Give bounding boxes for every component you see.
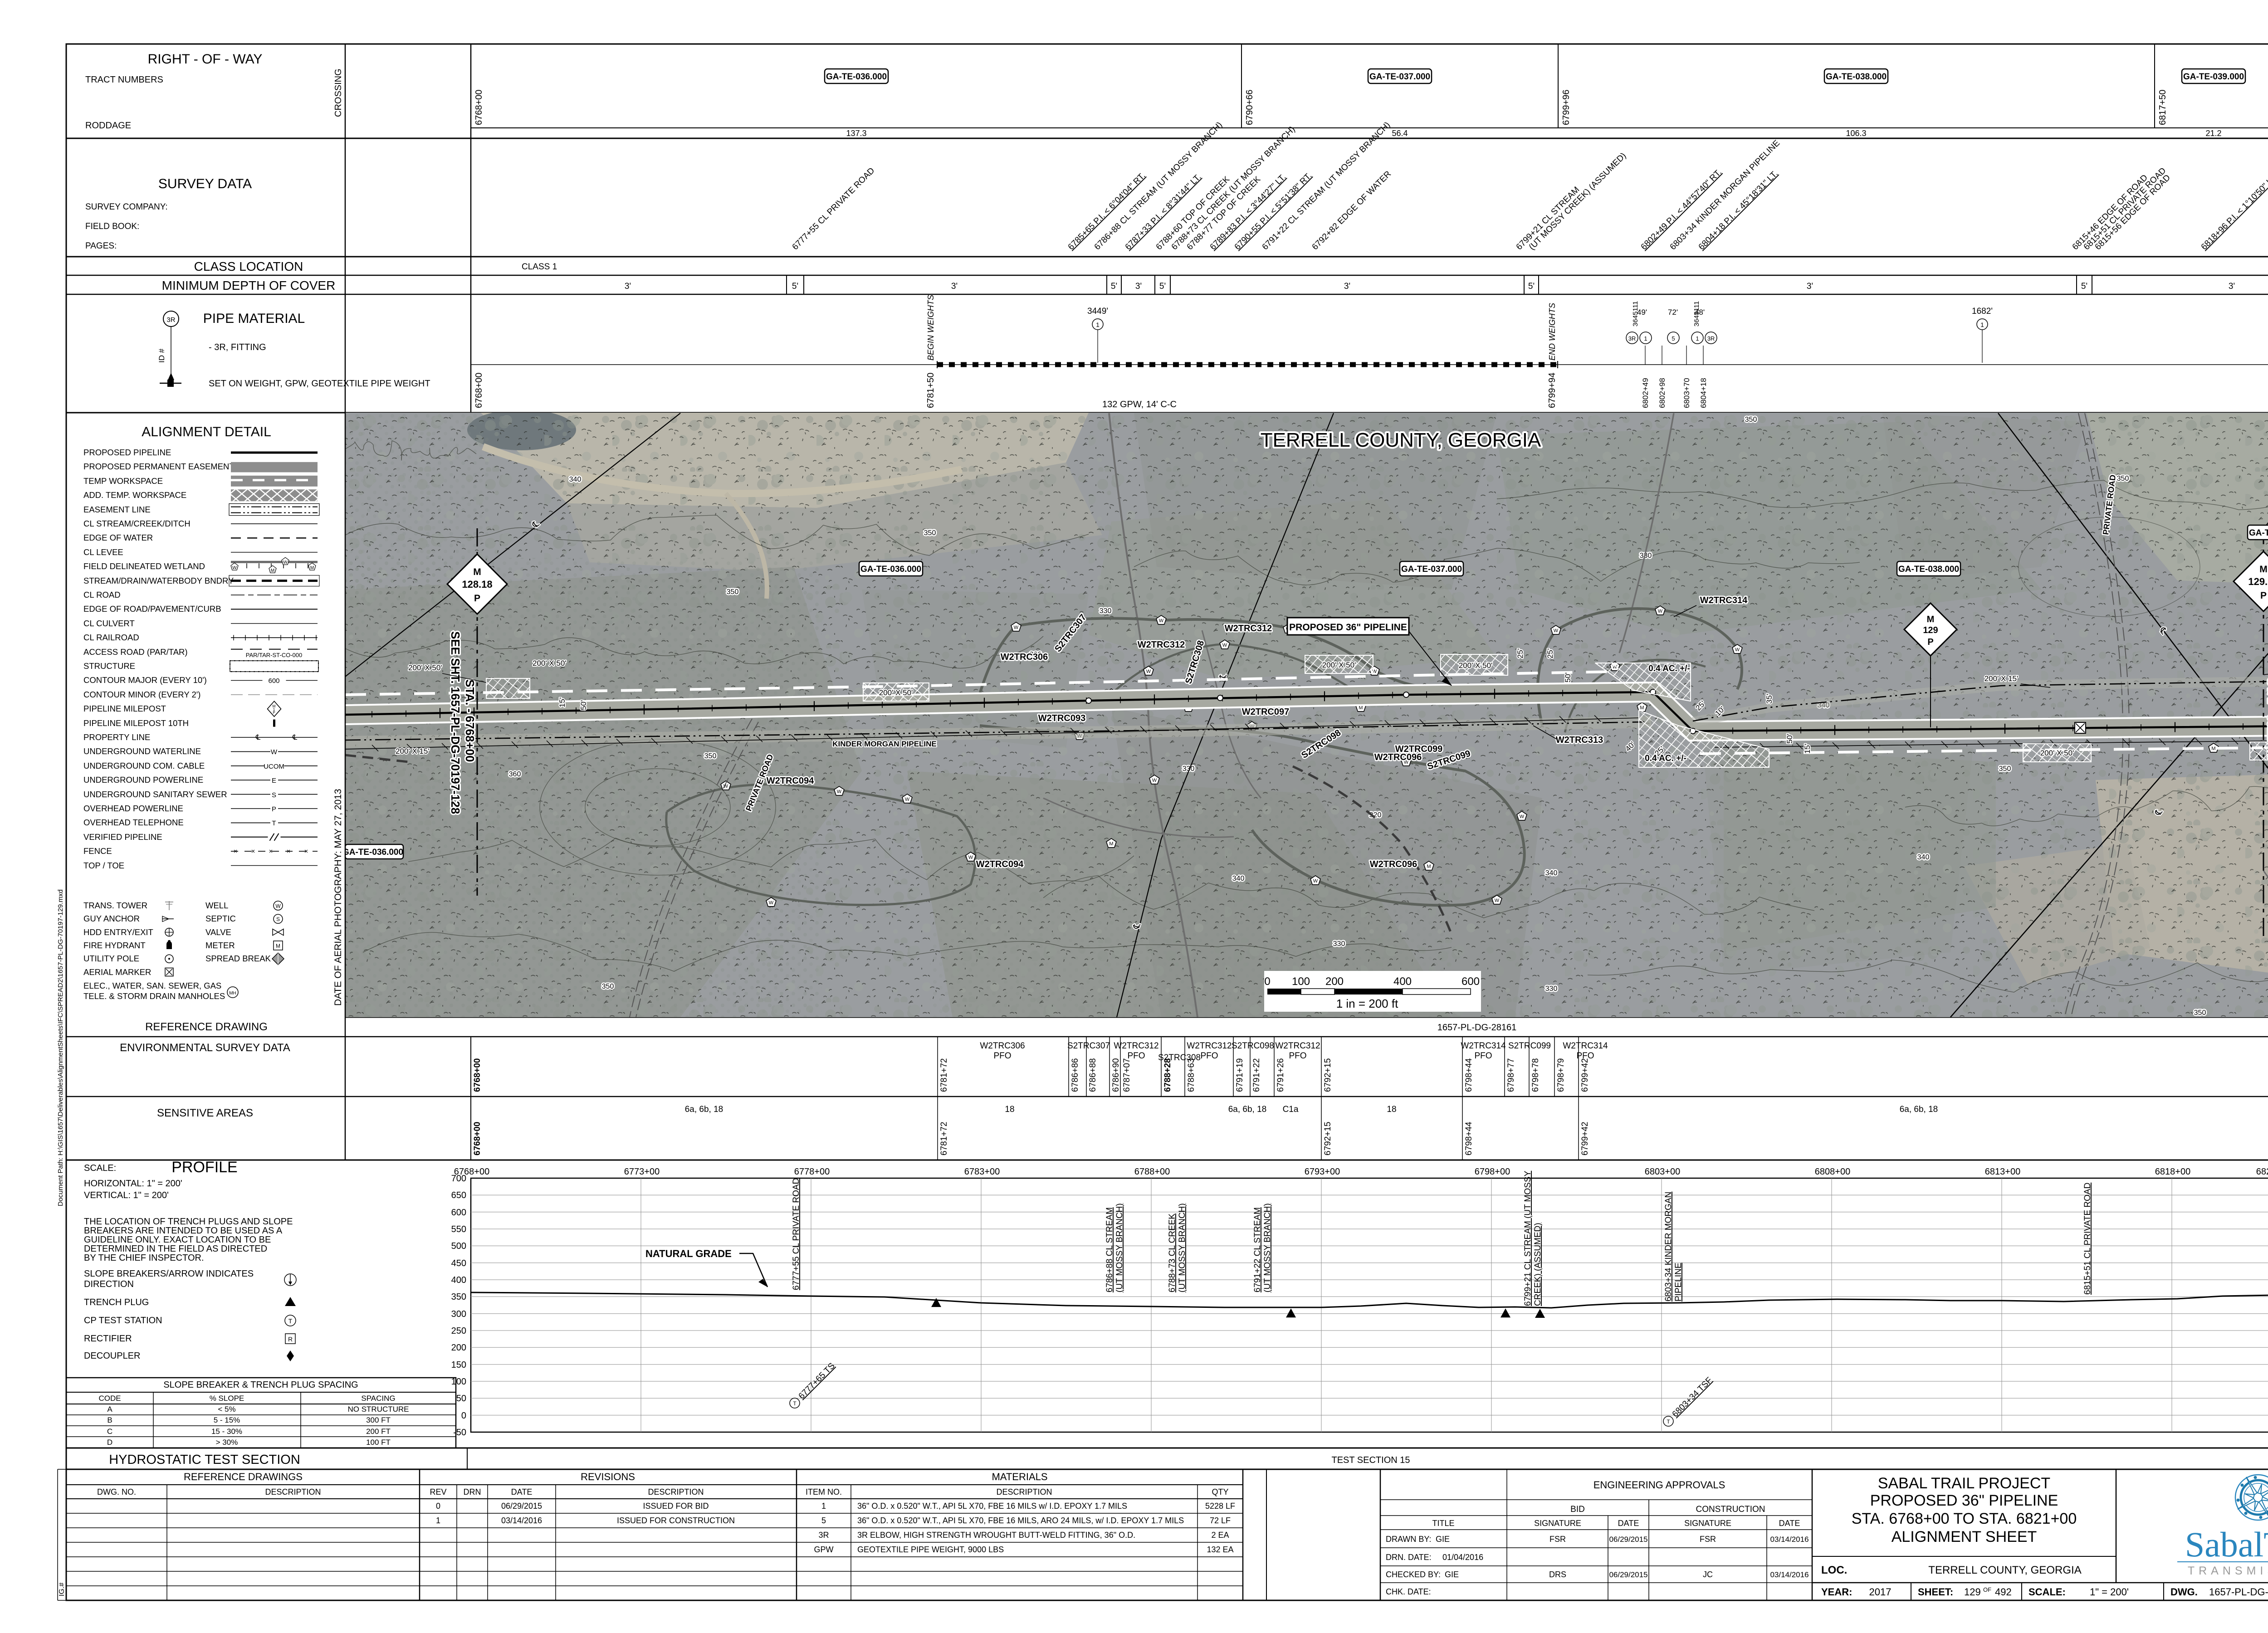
svg-text:UNDERGROUND SANITARY SEWER: UNDERGROUND SANITARY SEWER bbox=[83, 790, 227, 799]
svg-text:SabalTrail: SabalTrail bbox=[2185, 1525, 2268, 1564]
svg-text:% SLOPE: % SLOPE bbox=[210, 1394, 244, 1403]
svg-text:TRENCH PLUG: TRENCH PLUG bbox=[84, 1297, 149, 1307]
svg-text:3R: 3R bbox=[166, 316, 175, 324]
svg-text:YEAR:: YEAR: bbox=[1821, 1586, 1852, 1598]
svg-text:72': 72' bbox=[1668, 308, 1678, 317]
svg-text:S2TRC307: S2TRC307 bbox=[1067, 1041, 1110, 1051]
svg-text:15': 15' bbox=[1803, 744, 1812, 754]
svg-text:1: 1 bbox=[1096, 321, 1100, 328]
svg-text:0: 0 bbox=[1264, 975, 1270, 988]
svg-text:DETERMINED IN THE FIELD AS DIR: DETERMINED IN THE FIELD AS DIRECTED bbox=[84, 1244, 267, 1254]
svg-text:1 in = 200 ft: 1 in = 200 ft bbox=[1336, 997, 1398, 1010]
svg-text:6a, 6b, 18: 6a, 6b, 18 bbox=[1228, 1105, 1267, 1114]
svg-text:BY THE CHIEF INSPECTOR.: BY THE CHIEF INSPECTOR. bbox=[84, 1253, 204, 1263]
svg-text:(UT MOSSY BRANCH): (UT MOSSY BRANCH) bbox=[1178, 1203, 1187, 1292]
svg-text:360: 360 bbox=[509, 770, 521, 778]
svg-text:ELEC., WATER, SAN. SEWER, GAS: ELEC., WATER, SAN. SEWER, GAS bbox=[83, 981, 221, 990]
svg-text:35': 35' bbox=[1765, 694, 1774, 704]
svg-text:350: 350 bbox=[451, 1292, 466, 1302]
svg-text:W: W bbox=[1735, 647, 1740, 653]
svg-text:6791+22 CL STREAM: 6791+22 CL STREAM bbox=[1253, 1207, 1262, 1292]
svg-text:S2TRC099: S2TRC099 bbox=[1508, 1041, 1551, 1051]
svg-text:MH: MH bbox=[229, 991, 236, 996]
svg-text:50': 50' bbox=[579, 700, 588, 710]
svg-text:W: W bbox=[1313, 878, 1318, 884]
svg-text:600: 600 bbox=[1461, 975, 1480, 988]
svg-text:SEE SHT. 1657-PL-DG-70197-128: SEE SHT. 1657-PL-DG-70197-128 bbox=[449, 631, 462, 814]
svg-text:6777+55 CL PRIVATE ROAD: 6777+55 CL PRIVATE ROAD bbox=[792, 1178, 801, 1290]
svg-text:600: 600 bbox=[268, 677, 279, 685]
svg-text:R: R bbox=[288, 1336, 293, 1343]
svg-text:E: E bbox=[272, 777, 276, 785]
svg-text:ISSUED FOR BID: ISSUED FOR BID bbox=[643, 1501, 709, 1511]
svg-text:350: 350 bbox=[727, 588, 739, 596]
svg-text:6783+00: 6783+00 bbox=[964, 1167, 1000, 1177]
svg-text:350: 350 bbox=[1999, 765, 2011, 773]
svg-text:492: 492 bbox=[1995, 1586, 2012, 1598]
svg-text:GIE: GIE bbox=[1445, 1570, 1459, 1579]
svg-text:GUY ANCHOR: GUY ANCHOR bbox=[83, 914, 140, 923]
svg-text:137.3: 137.3 bbox=[846, 129, 866, 138]
svg-text:25': 25' bbox=[1546, 648, 1554, 658]
svg-text:GA-TE-038.000: GA-TE-038.000 bbox=[1898, 565, 1959, 574]
svg-text:CLASS 1: CLASS 1 bbox=[522, 262, 557, 272]
svg-text:6788+28: 6788+28 bbox=[1163, 1058, 1173, 1092]
svg-text:END WEIGHTS: END WEIGHTS bbox=[1548, 303, 1557, 361]
svg-text:HORIZONTAL: 1" = 200': HORIZONTAL: 1" = 200' bbox=[84, 1179, 182, 1189]
svg-text:W2TRC312: W2TRC312 bbox=[1225, 624, 1272, 634]
svg-text:SURVEY COMPANY:: SURVEY COMPANY: bbox=[85, 202, 168, 212]
svg-text:18: 18 bbox=[1005, 1105, 1014, 1114]
svg-text:W: W bbox=[1495, 898, 1500, 903]
svg-text:QTY: QTY bbox=[1212, 1487, 1228, 1497]
svg-text:330: 330 bbox=[1545, 985, 1558, 993]
svg-text:6790+66: 6790+66 bbox=[1245, 90, 1255, 125]
svg-text:W: W bbox=[968, 855, 973, 860]
svg-text:W2TRC306: W2TRC306 bbox=[1001, 652, 1048, 662]
svg-text:06/29/2015: 06/29/2015 bbox=[501, 1501, 542, 1511]
svg-text:GA-TE-039.000: GA-TE-039.000 bbox=[2249, 528, 2268, 538]
svg-text:SCALE:: SCALE: bbox=[2028, 1586, 2066, 1598]
svg-text:×: × bbox=[287, 848, 291, 855]
svg-text:PROPOSED PERMANENT EASEMENT: PROPOSED PERMANENT EASEMENT bbox=[83, 462, 235, 471]
svg-text:PROPOSED 36" PIPELINE: PROPOSED 36" PIPELINE bbox=[1289, 622, 1407, 633]
svg-text:100: 100 bbox=[1292, 975, 1310, 988]
svg-text:S2TRC098: S2TRC098 bbox=[1232, 1041, 1274, 1051]
svg-text:ENGINEERING APPROVALS: ENGINEERING APPROVALS bbox=[1593, 1479, 1725, 1491]
svg-text:CL RAILROAD: CL RAILROAD bbox=[83, 633, 139, 642]
svg-text:DIRECTION: DIRECTION bbox=[84, 1279, 134, 1289]
svg-text:GEOTEXTILE PIPE WEIGHT, 9000 L: GEOTEXTILE PIPE WEIGHT, 9000 LBS bbox=[857, 1545, 1004, 1554]
svg-text:3': 3' bbox=[951, 282, 958, 291]
svg-text:200: 200 bbox=[451, 1343, 466, 1353]
svg-text:PFO: PFO bbox=[1127, 1051, 1145, 1061]
svg-text:W: W bbox=[837, 789, 842, 795]
svg-text:6792+15: 6792+15 bbox=[1323, 1122, 1333, 1156]
svg-text:150: 150 bbox=[451, 1360, 466, 1370]
svg-text:129: 129 bbox=[1964, 1586, 1981, 1598]
svg-text:PIPELINE MILEPOST: PIPELINE MILEPOST bbox=[83, 704, 166, 713]
svg-text:6791+19: 6791+19 bbox=[1235, 1058, 1245, 1092]
svg-text:NO STRUCTURE: NO STRUCTURE bbox=[347, 1405, 409, 1414]
svg-text:CHK. DATE:: CHK. DATE: bbox=[1386, 1587, 1431, 1596]
svg-text:EDGE OF WATER: EDGE OF WATER bbox=[83, 533, 153, 542]
svg-text:5': 5' bbox=[1528, 282, 1535, 291]
svg-text:W2TRC313: W2TRC313 bbox=[1556, 735, 1603, 745]
svg-text:0.4 AC. +/-: 0.4 AC. +/- bbox=[1648, 664, 1690, 673]
svg-text:3R: 3R bbox=[1707, 335, 1715, 342]
svg-text:UTILITY POLE: UTILITY POLE bbox=[83, 954, 139, 963]
svg-text:GA-TE-039.000: GA-TE-039.000 bbox=[2183, 72, 2244, 82]
svg-text:6778+00: 6778+00 bbox=[794, 1167, 830, 1177]
svg-text:DWG. NO.: DWG. NO. bbox=[97, 1487, 136, 1497]
svg-text:5': 5' bbox=[1111, 282, 1117, 291]
svg-text:MATERIALS: MATERIALS bbox=[992, 1471, 1047, 1482]
svg-text:TELE. & STORM DRAIN MANHOLES: TELE. & STORM DRAIN MANHOLES bbox=[83, 991, 225, 1001]
svg-text:5: 5 bbox=[1672, 335, 1675, 342]
svg-text:W: W bbox=[271, 748, 278, 756]
svg-text:W2TRC096: W2TRC096 bbox=[1374, 752, 1422, 762]
svg-text:500: 500 bbox=[451, 1241, 466, 1251]
svg-text:6786+90: 6786+90 bbox=[1111, 1058, 1121, 1092]
svg-text:6813+00: 6813+00 bbox=[1985, 1167, 2020, 1177]
svg-text:200' X 50': 200' X 50' bbox=[879, 688, 913, 697]
svg-text:0: 0 bbox=[461, 1411, 466, 1421]
svg-text:550: 550 bbox=[451, 1224, 466, 1234]
svg-text:36" O.D. x 0.520" W.T., API 5L: 36" O.D. x 0.520" W.T., API 5L X70, FBE … bbox=[857, 1501, 1127, 1511]
svg-text:340: 340 bbox=[1917, 853, 1930, 861]
svg-text:50': 50' bbox=[1564, 673, 1572, 682]
svg-text:SET ON WEIGHT, GPW, GEOTEXTILE: SET ON WEIGHT, GPW, GEOTEXTILE PIPE WEIG… bbox=[209, 379, 430, 389]
svg-text:1: 1 bbox=[436, 1516, 440, 1525]
svg-text:TITLE: TITLE bbox=[1432, 1519, 1454, 1528]
svg-text:M: M bbox=[1640, 705, 1644, 711]
svg-text:FENCE: FENCE bbox=[83, 846, 112, 856]
svg-text:5': 5' bbox=[792, 282, 798, 291]
svg-text:W2TRC306: W2TRC306 bbox=[980, 1041, 1025, 1051]
svg-text:T: T bbox=[272, 819, 276, 827]
svg-text:6818+00: 6818+00 bbox=[2155, 1167, 2190, 1177]
svg-text:129: 129 bbox=[1923, 625, 1938, 635]
svg-text:REFERENCE DRAWINGS: REFERENCE DRAWINGS bbox=[184, 1471, 303, 1482]
svg-text:6768+00: 6768+00 bbox=[473, 1122, 482, 1156]
svg-text:3R: 3R bbox=[818, 1531, 829, 1540]
svg-text:- 3R, FITTING: - 3R, FITTING bbox=[209, 342, 266, 352]
svg-text:HDD ENTRY/EXIT: HDD ENTRY/EXIT bbox=[83, 927, 153, 937]
svg-text:6802+98: 6802+98 bbox=[1658, 378, 1667, 408]
svg-text:RODDAGE: RODDAGE bbox=[85, 121, 131, 131]
svg-text:GA-TE-036.000: GA-TE-036.000 bbox=[342, 848, 403, 857]
svg-text:DESCRIPTION: DESCRIPTION bbox=[265, 1487, 321, 1497]
svg-text:NATURAL GRADE: NATURAL GRADE bbox=[645, 1248, 732, 1259]
svg-text:WELL: WELL bbox=[205, 901, 228, 910]
svg-text:5': 5' bbox=[2081, 282, 2087, 291]
svg-text:200' X 15': 200' X 15' bbox=[1984, 674, 2019, 683]
svg-text:SLOPE BREAKERS/ARROW INDICATES: SLOPE BREAKERS/ARROW INDICATES bbox=[84, 1269, 254, 1279]
svg-text:GA-TE-036.000: GA-TE-036.000 bbox=[860, 565, 921, 574]
svg-text:GPW: GPW bbox=[814, 1545, 834, 1554]
svg-text:DRAWN BY:: DRAWN BY: bbox=[1386, 1535, 1431, 1544]
svg-text:M: M bbox=[2259, 564, 2268, 575]
svg-text:REV: REV bbox=[430, 1487, 446, 1497]
svg-text:3': 3' bbox=[2229, 282, 2235, 291]
svg-text:6792+15: 6792+15 bbox=[1323, 1058, 1333, 1092]
svg-text:BREAKERS ARE INTENDED TO BE US: BREAKERS ARE INTENDED TO BE USED AS A bbox=[84, 1226, 283, 1236]
svg-text:GA-TE-037.000: GA-TE-037.000 bbox=[1369, 72, 1430, 82]
svg-text:5: 5 bbox=[821, 1516, 826, 1525]
svg-text:FIELD DELINEATED WETLAND: FIELD DELINEATED WETLAND bbox=[83, 561, 205, 571]
svg-text:ENVIRONMENTAL SURVEY DATA: ENVIRONMENTAL SURVEY DATA bbox=[120, 1042, 290, 1054]
svg-text:ITEM NO.: ITEM NO. bbox=[806, 1487, 842, 1497]
svg-text:STA. 6768+00 TO STA. 6821+00: STA. 6768+00 TO STA. 6821+00 bbox=[1852, 1510, 2077, 1527]
svg-text:C1a: C1a bbox=[1283, 1105, 1299, 1114]
svg-text:6786+88 CL STREAM: 6786+88 CL STREAM bbox=[1105, 1207, 1114, 1292]
svg-text:C: C bbox=[107, 1427, 112, 1436]
svg-text:(UT MOSSY BRANCH): (UT MOSSY BRANCH) bbox=[1115, 1203, 1124, 1292]
svg-text:W: W bbox=[905, 797, 910, 802]
svg-text:01/04/2016: 01/04/2016 bbox=[1442, 1553, 1483, 1562]
svg-text:3': 3' bbox=[1344, 282, 1350, 291]
svg-text:FIRE HYDRANT: FIRE HYDRANT bbox=[83, 941, 146, 950]
svg-text:6798+44: 6798+44 bbox=[1464, 1058, 1474, 1092]
svg-text:DECOUPLER: DECOUPLER bbox=[84, 1351, 140, 1361]
svg-text:100: 100 bbox=[451, 1377, 466, 1387]
svg-text:5': 5' bbox=[1159, 282, 1166, 291]
svg-text:W: W bbox=[275, 903, 281, 909]
svg-text:DRS: DRS bbox=[1549, 1570, 1566, 1579]
svg-text:3': 3' bbox=[625, 282, 631, 291]
svg-text:M: M bbox=[271, 568, 274, 573]
svg-text:W2TRC097: W2TRC097 bbox=[1242, 707, 1289, 717]
svg-text:VERIFIED PIPELINE: VERIFIED PIPELINE bbox=[83, 832, 162, 842]
svg-text:CL CULVERT: CL CULVERT bbox=[83, 619, 135, 628]
svg-text:650: 650 bbox=[451, 1190, 466, 1200]
svg-text:6788+00: 6788+00 bbox=[1134, 1167, 1170, 1177]
svg-text:RIGHT - OF - WAY: RIGHT - OF - WAY bbox=[148, 52, 263, 67]
svg-text:DRN. DATE:: DRN. DATE: bbox=[1386, 1553, 1432, 1562]
svg-text:CP TEST STATION: CP TEST STATION bbox=[84, 1316, 162, 1326]
svg-text:6815+51 CL PRIVATE ROAD: 6815+51 CL PRIVATE ROAD bbox=[2083, 1183, 2092, 1295]
svg-text:SEPTIC: SEPTIC bbox=[205, 914, 236, 923]
svg-text:200 FT: 200 FT bbox=[366, 1427, 391, 1436]
svg-text:S: S bbox=[272, 791, 276, 799]
svg-text:TEST SECTION 15: TEST SECTION 15 bbox=[1331, 1455, 1410, 1465]
svg-text:50': 50' bbox=[1785, 734, 1794, 744]
svg-text:SIGNATURE: SIGNATURE bbox=[1684, 1519, 1731, 1528]
svg-text:×: × bbox=[304, 848, 308, 855]
svg-text:200: 200 bbox=[1325, 975, 1344, 988]
svg-text:TRANS. TOWER: TRANS. TOWER bbox=[83, 901, 147, 910]
svg-text:6793+00: 6793+00 bbox=[1305, 1167, 1340, 1177]
svg-text:350: 350 bbox=[704, 752, 717, 760]
svg-text:℄: ℄ bbox=[255, 734, 261, 741]
svg-text:W: W bbox=[232, 565, 237, 570]
svg-text:TRACT NUMBERS: TRACT NUMBERS bbox=[85, 75, 163, 85]
svg-text:06/29/2015: 06/29/2015 bbox=[1609, 1535, 1647, 1544]
svg-text:PIPELINE MILEPOST 10TH: PIPELINE MILEPOST 10TH bbox=[83, 718, 189, 728]
svg-text:ACCESS ROAD (PAR/TAR): ACCESS ROAD (PAR/TAR) bbox=[83, 647, 188, 657]
svg-text:6798+78: 6798+78 bbox=[1531, 1058, 1540, 1092]
svg-text:CROSSING: CROSSING bbox=[333, 68, 343, 117]
svg-text:6804+18: 6804+18 bbox=[1699, 378, 1708, 408]
svg-text:OF: OF bbox=[1983, 1586, 1991, 1593]
svg-text:6781+72: 6781+72 bbox=[939, 1058, 949, 1092]
svg-text:P: P bbox=[272, 805, 276, 813]
svg-text:ADD. TEMP. WORKSPACE: ADD. TEMP. WORKSPACE bbox=[83, 490, 186, 500]
svg-text:PROPERTY LINE: PROPERTY LINE bbox=[83, 732, 150, 742]
svg-text:TOP / TOE: TOP / TOE bbox=[83, 861, 124, 870]
svg-text:3645111: 3645111 bbox=[1693, 301, 1701, 327]
svg-text:300: 300 bbox=[451, 1309, 466, 1319]
svg-text:18: 18 bbox=[1387, 1105, 1396, 1114]
svg-text:×: × bbox=[234, 848, 238, 855]
svg-text:PAR/TAR-ST-CO-000: PAR/TAR-ST-CO-000 bbox=[246, 652, 302, 658]
svg-text:W2TRC093: W2TRC093 bbox=[1038, 713, 1085, 723]
svg-text:M: M bbox=[1109, 841, 1113, 847]
svg-text:1: 1 bbox=[821, 1501, 826, 1511]
svg-text:350: 350 bbox=[1745, 416, 1757, 424]
svg-text:6a, 6b, 18: 6a, 6b, 18 bbox=[685, 1105, 723, 1114]
svg-text:UNDERGROUND WATERLINE: UNDERGROUND WATERLINE bbox=[83, 746, 201, 756]
svg-text:M: M bbox=[276, 943, 280, 949]
svg-text:56.4: 56.4 bbox=[1392, 129, 1408, 138]
svg-text:STRUCTURE: STRUCTURE bbox=[83, 661, 135, 671]
svg-text:PIPELINE: PIPELINE bbox=[1674, 1263, 1683, 1302]
svg-text:6786+88: 6786+88 bbox=[1088, 1058, 1098, 1092]
svg-text:SURVEY DATA: SURVEY DATA bbox=[158, 176, 252, 191]
svg-text:CLASS LOCATION: CLASS LOCATION bbox=[194, 259, 303, 273]
svg-text:W: W bbox=[769, 900, 774, 906]
svg-text:SCALE:: SCALE: bbox=[84, 1163, 116, 1173]
svg-text:PFO: PFO bbox=[1289, 1051, 1306, 1061]
svg-text:3R ELBOW, HIGH STRENGTH WROUGH: 3R ELBOW, HIGH STRENGTH WROUGHT BUTT-WEL… bbox=[857, 1531, 1135, 1540]
svg-text:6798+00: 6798+00 bbox=[1475, 1167, 1510, 1177]
svg-text:250: 250 bbox=[451, 1326, 466, 1336]
svg-text:6791+22: 6791+22 bbox=[1252, 1058, 1261, 1092]
svg-text:SIGNATURE: SIGNATURE bbox=[1534, 1519, 1581, 1528]
svg-text:03/14/2016: 03/14/2016 bbox=[501, 1516, 542, 1525]
svg-text:STA. - 6768+00: STA. - 6768+00 bbox=[463, 679, 477, 762]
svg-text:200' X 50': 200' X 50' bbox=[408, 663, 442, 672]
svg-text:132 GPW, 14' C-C: 132 GPW, 14' C-C bbox=[1102, 400, 1177, 409]
svg-text:1: 1 bbox=[1644, 335, 1647, 342]
svg-text:SPREAD BREAK: SPREAD BREAK bbox=[205, 954, 271, 963]
svg-text:W: W bbox=[1554, 628, 1559, 634]
svg-text:3': 3' bbox=[1807, 282, 1813, 291]
svg-text:PFO: PFO bbox=[1576, 1051, 1594, 1061]
svg-text:P: P bbox=[2260, 590, 2267, 601]
svg-text:330: 330 bbox=[1333, 940, 1345, 948]
svg-text:6817+50: 6817+50 bbox=[2158, 90, 2168, 125]
svg-text:6a, 6b, 18: 6a, 6b, 18 bbox=[1900, 1105, 1938, 1114]
svg-text:200' X 50': 200' X 50' bbox=[2040, 749, 2074, 757]
svg-text:3645111: 3645111 bbox=[1632, 301, 1639, 327]
svg-text:CONTOUR MINOR (EVERY 2'): CONTOUR MINOR (EVERY 2') bbox=[83, 690, 200, 699]
svg-text:106.3: 106.3 bbox=[1846, 129, 1866, 138]
svg-text:6768+00: 6768+00 bbox=[474, 373, 484, 408]
svg-text:STREAM/DRAIN/WATERBODY BNDRY: STREAM/DRAIN/WATERBODY BNDRY bbox=[83, 576, 234, 585]
svg-text:×: × bbox=[269, 848, 273, 855]
svg-text:M: M bbox=[310, 565, 314, 570]
svg-text:6808+00: 6808+00 bbox=[1815, 1167, 1850, 1177]
svg-text:6803+70: 6803+70 bbox=[1682, 378, 1691, 408]
svg-text:M: M bbox=[1927, 614, 1935, 624]
svg-text:ISSUED FOR CONSTRUCTION: ISSUED FOR CONSTRUCTION bbox=[617, 1516, 735, 1525]
svg-text:15': 15' bbox=[558, 697, 567, 707]
svg-text:CHECKED BY:: CHECKED BY: bbox=[1386, 1570, 1441, 1579]
svg-text:KINDER MORGAN PIPELINE: KINDER MORGAN PIPELINE bbox=[832, 740, 937, 748]
svg-text:6781+72: 6781+72 bbox=[939, 1122, 949, 1156]
svg-text:W: W bbox=[1520, 814, 1525, 819]
svg-text:< 5%: < 5% bbox=[218, 1405, 235, 1414]
svg-text:1: 1 bbox=[1980, 321, 1984, 328]
svg-text:W: W bbox=[1152, 778, 1157, 783]
svg-text:REFERENCE DRAWING: REFERENCE DRAWING bbox=[145, 1021, 268, 1033]
svg-text:(UT MOSSY BRANCH): (UT MOSSY BRANCH) bbox=[1263, 1203, 1272, 1292]
svg-text:M: M bbox=[2211, 746, 2215, 751]
svg-text:CL STREAM/CREEK/DITCH: CL STREAM/CREEK/DITCH bbox=[83, 519, 191, 528]
svg-text:6799+94: 6799+94 bbox=[1547, 373, 1557, 408]
svg-text:W: W bbox=[1222, 643, 1227, 648]
svg-text:DRN: DRN bbox=[464, 1487, 481, 1497]
svg-text:6803+34 KINDER MORGAN: 6803+34 KINDER MORGAN bbox=[1664, 1192, 1673, 1302]
svg-text:0: 0 bbox=[436, 1501, 440, 1511]
svg-text:TRANSMISSION: TRANSMISSION bbox=[2188, 1565, 2268, 1577]
svg-text:100 FT: 100 FT bbox=[366, 1438, 391, 1447]
svg-text:A: A bbox=[107, 1405, 112, 1414]
svg-text:1" = 200': 1" = 200' bbox=[2090, 1586, 2129, 1598]
svg-text:DWG.: DWG. bbox=[2170, 1586, 2198, 1598]
svg-text:W2TRC314: W2TRC314 bbox=[1700, 595, 1748, 605]
svg-text:EDGE OF ROAD/PAVEMENT/CURB: EDGE OF ROAD/PAVEMENT/CURB bbox=[83, 604, 221, 614]
svg-text:GUIDELINE ONLY. EXACT LOCATIO: GUIDELINE ONLY. EXACT LOCATION TO BE bbox=[84, 1235, 271, 1245]
svg-text:DATE: DATE bbox=[511, 1487, 533, 1497]
svg-text:BEGIN WEIGHTS: BEGIN WEIGHTS bbox=[926, 295, 935, 361]
svg-text:340: 340 bbox=[1232, 875, 1245, 882]
svg-text:DESCRIPTION: DESCRIPTION bbox=[648, 1487, 704, 1497]
svg-text:℄: ℄ bbox=[292, 734, 298, 741]
svg-text:PFO: PFO bbox=[993, 1051, 1011, 1061]
svg-text:1682': 1682' bbox=[1972, 307, 1993, 316]
svg-text:6781+50: 6781+50 bbox=[926, 373, 936, 408]
svg-text:THE LOCATION OF TRENCH PLUGS A: THE LOCATION OF TRENCH PLUGS AND SLOPE bbox=[84, 1217, 293, 1227]
svg-text:6768+00: 6768+00 bbox=[454, 1167, 489, 1177]
svg-text:6821+00: 6821+00 bbox=[2256, 1167, 2268, 1177]
svg-text:PROFILE: PROFILE bbox=[171, 1159, 237, 1176]
svg-text:2 EA: 2 EA bbox=[1211, 1531, 1229, 1540]
svg-text:1: 1 bbox=[1696, 335, 1699, 342]
svg-text:200' X 50': 200' X 50' bbox=[1459, 661, 1493, 670]
svg-text:129.19: 129.19 bbox=[2248, 576, 2268, 587]
svg-text:×: × bbox=[251, 848, 255, 855]
svg-text:CREEK) (ASSUMED): CREEK) (ASSUMED) bbox=[1533, 1223, 1543, 1306]
svg-text:W: W bbox=[283, 560, 288, 565]
svg-text:W2TRC094: W2TRC094 bbox=[767, 776, 814, 786]
svg-text:T: T bbox=[1667, 1419, 1670, 1425]
svg-text:W2TRC312: W2TRC312 bbox=[1114, 1041, 1158, 1051]
svg-text:T: T bbox=[288, 1317, 293, 1325]
svg-text:S: S bbox=[276, 916, 280, 922]
svg-text:PFO: PFO bbox=[1200, 1051, 1218, 1061]
svg-text:TERRELL COUNTY, GEORGIA: TERRELL COUNTY, GEORGIA bbox=[1261, 429, 1541, 451]
svg-text:-50: -50 bbox=[453, 1428, 466, 1438]
svg-text:BID: BID bbox=[1570, 1505, 1585, 1514]
svg-text:PIPE MATERIAL: PIPE MATERIAL bbox=[203, 311, 305, 326]
svg-text:15 - 30%: 15 - 30% bbox=[211, 1427, 242, 1436]
svg-text:AERIAL MARKER: AERIAL MARKER bbox=[83, 967, 151, 977]
svg-text:6788+73 CL CREEK: 6788+73 CL CREEK bbox=[1168, 1214, 1177, 1292]
svg-text:GA-TE-037.000: GA-TE-037.000 bbox=[1401, 565, 1462, 574]
